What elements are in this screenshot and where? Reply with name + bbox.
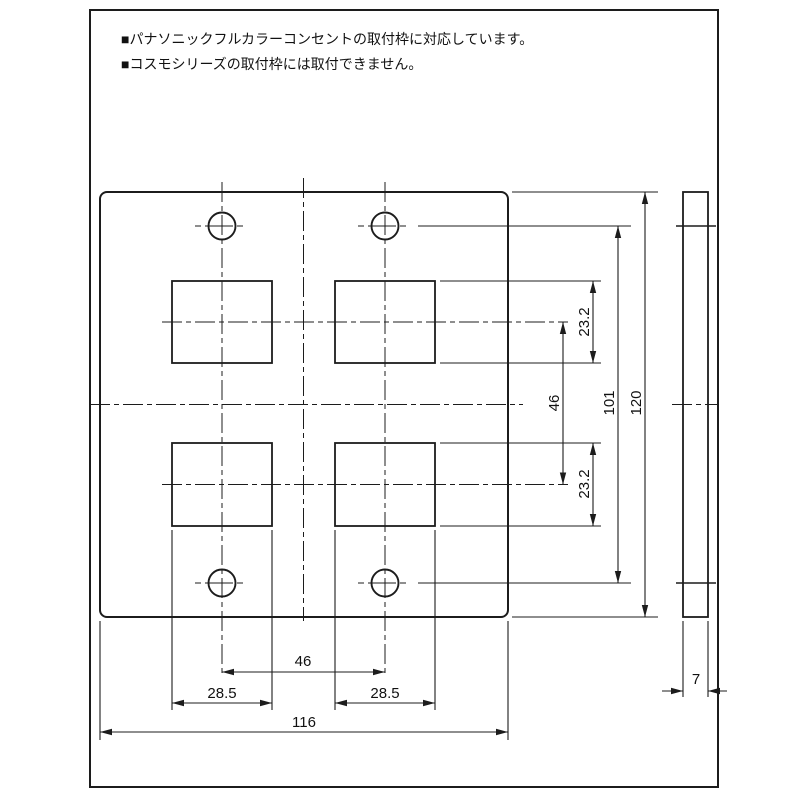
dim-arrow: [590, 281, 596, 293]
dim-label-thickness: 7: [692, 671, 700, 688]
dim-label-plate-height: 120: [628, 390, 645, 415]
dim-arrow: [708, 688, 720, 694]
technical-drawing: ■パナソニックフルカラーコンセントの取付枠に対応しています。 ■コスモシリーズの…: [0, 0, 800, 800]
dim-arrow: [423, 700, 435, 706]
dim-arrow: [560, 473, 566, 485]
note-line-1: ■パナソニックフルカラーコンセントの取付枠に対応しています。: [121, 31, 533, 47]
drawing-frame: [90, 10, 718, 787]
dim-label-plate-width: 116: [292, 714, 316, 731]
dim-arrow: [615, 226, 621, 238]
front-view: [90, 178, 568, 676]
dim-label-screw-pitch-horizontal: 46: [295, 653, 312, 670]
dim-arrow: [590, 443, 596, 455]
dim-label-opening-height-top: 23.2: [576, 307, 593, 336]
dim-arrow: [100, 729, 112, 735]
dim-arrow: [222, 669, 234, 675]
dim-arrow: [335, 700, 347, 706]
dim-label-opening-width-right: 28.5: [370, 685, 399, 702]
dim-arrow: [590, 514, 596, 526]
dim-label-screw-pitch-vertical: 101: [601, 390, 618, 415]
dim-arrow: [642, 192, 648, 204]
dim-arrow: [642, 605, 648, 617]
dim-arrow: [260, 700, 272, 706]
dim-arrow: [590, 351, 596, 363]
dim-arrow: [373, 669, 385, 675]
dim-arrow: [615, 571, 621, 583]
dim-label-opening-height-bottom: 23.2: [576, 469, 593, 498]
note-line-2: ■コスモシリーズの取付枠には取付できません。: [121, 56, 422, 72]
dim-arrow: [671, 688, 683, 694]
dim-arrow: [560, 322, 566, 334]
dim-label-opening-width-left: 28.5: [207, 685, 236, 702]
drawing-sheet: ■パナソニックフルカラーコンセントの取付枠に対応しています。 ■コスモシリーズの…: [0, 0, 800, 800]
dim-arrow: [496, 729, 508, 735]
bottom-dimensions: 46 28.5 28.5 116: [100, 530, 508, 740]
dim-label-row-pitch: 46: [546, 395, 563, 412]
dim-arrow: [172, 700, 184, 706]
